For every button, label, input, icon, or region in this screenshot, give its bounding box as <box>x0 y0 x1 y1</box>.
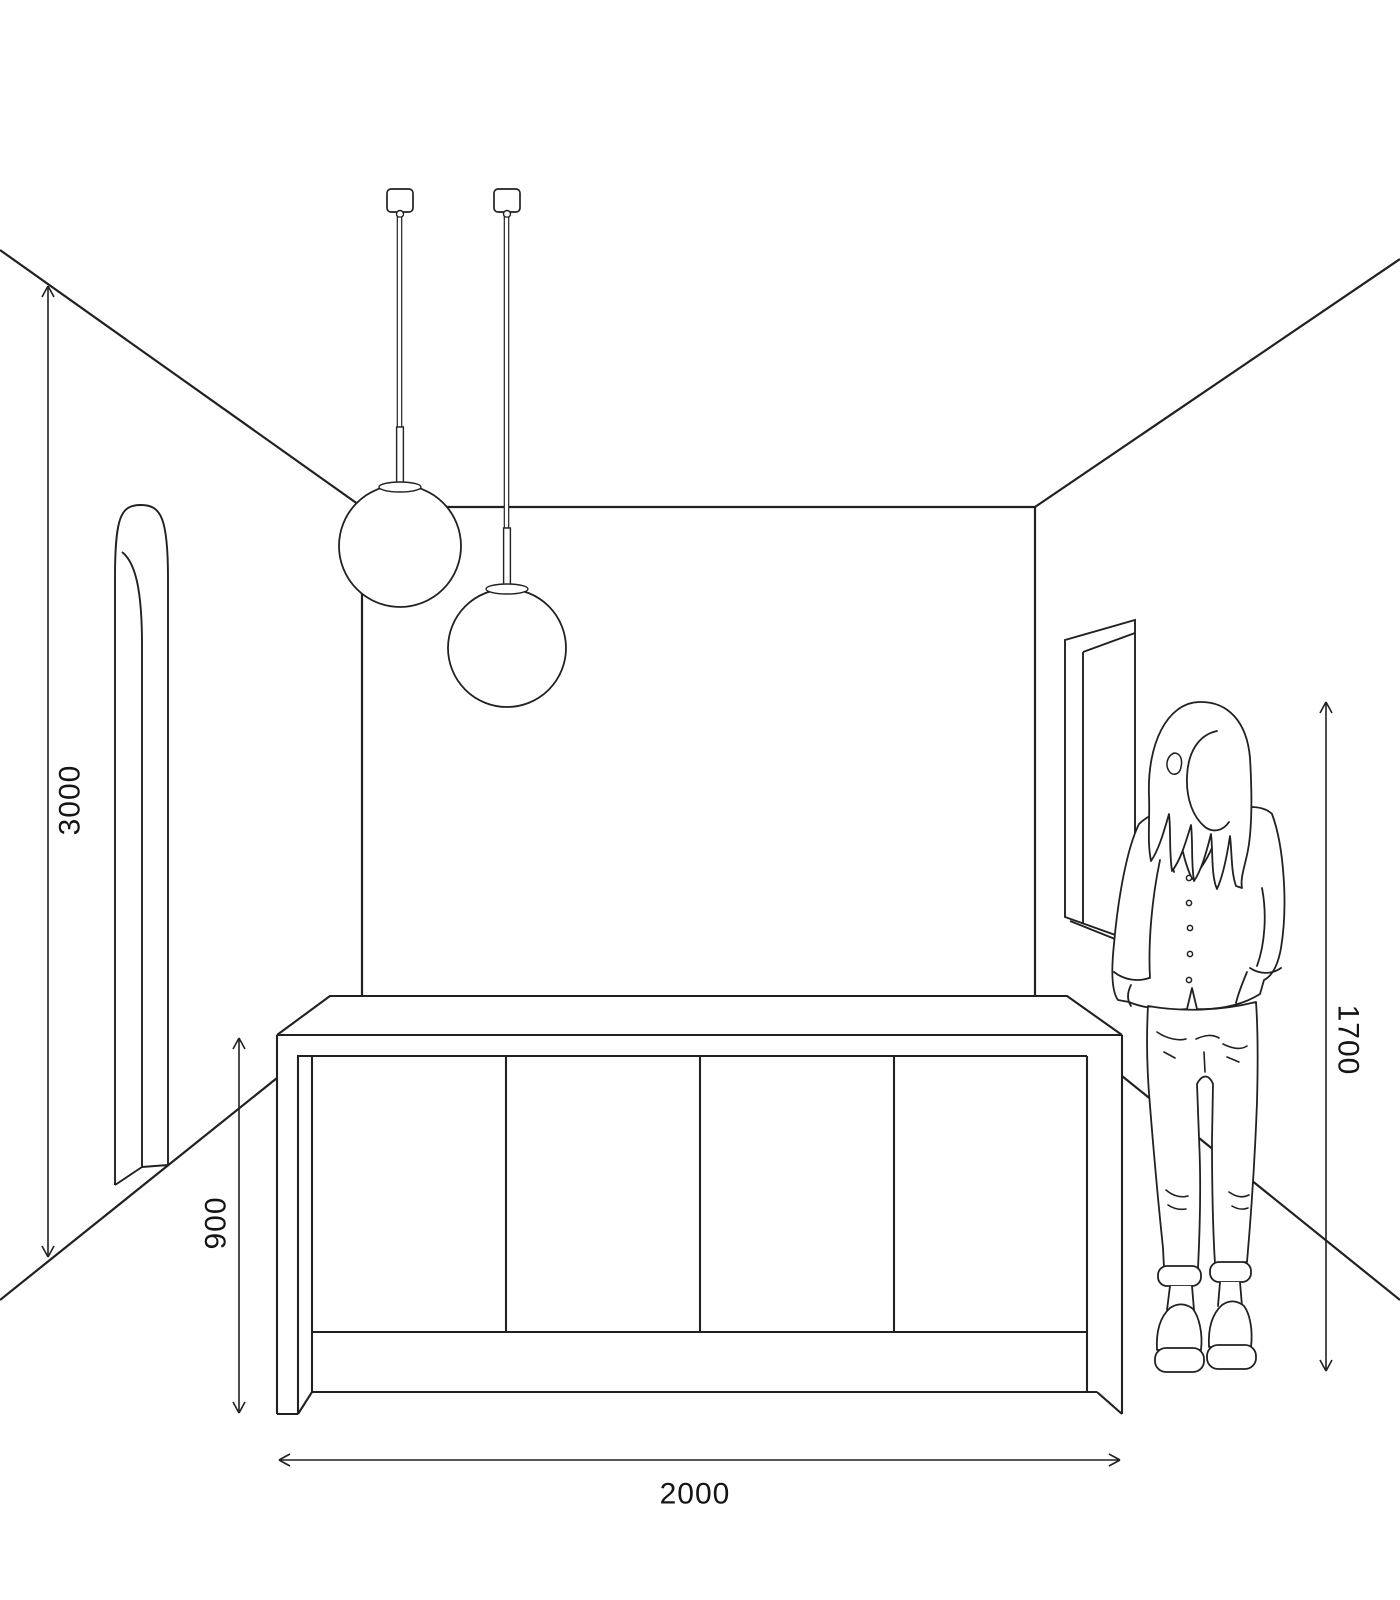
diagram-canvas: 3000 900 1700 2000 <box>0 0 1400 1600</box>
standing-person <box>1112 702 1284 1372</box>
right-wall-ceiling-line <box>1035 259 1400 507</box>
globe-cap-right <box>486 584 528 594</box>
room-dimension-diagram: 3000 900 1700 2000 <box>0 0 1400 1600</box>
button-1 <box>1186 875 1191 880</box>
globe-cap-left <box>379 482 421 492</box>
pendant-stem-left <box>397 427 404 484</box>
dimension-person-height: 1700 <box>1320 702 1365 1371</box>
arch-threshold-line <box>115 1165 168 1185</box>
pendant-light-left <box>339 189 461 607</box>
right-shoe-sole <box>1207 1345 1256 1369</box>
pendant-stem-right <box>504 528 511 586</box>
left-shoe-sole <box>1155 1348 1204 1372</box>
pendant-cord-left <box>397 217 401 427</box>
dimension-wall-height: 3000 <box>42 286 87 1257</box>
pendant-light-right <box>448 189 566 707</box>
ceiling-canopy-left <box>387 189 413 212</box>
glass-globe-right <box>448 589 566 707</box>
pendant-cord-right <box>504 217 508 528</box>
ceiling-canopy-right <box>494 189 520 212</box>
right-shoe-upper <box>1209 1301 1252 1347</box>
button-5 <box>1186 977 1191 982</box>
person-pants <box>1147 1002 1258 1268</box>
button-3 <box>1187 925 1192 930</box>
glass-globe-left <box>339 485 461 607</box>
dimension-label-900: 900 <box>200 1196 233 1249</box>
person-ear <box>1167 753 1182 774</box>
left-wall-floor-line <box>0 1078 277 1300</box>
left-wall-ceiling-line <box>0 250 362 507</box>
right-pant-cuff <box>1210 1262 1251 1282</box>
dimension-label-2000: 2000 <box>660 1478 731 1511</box>
arched-doorway <box>115 505 168 1185</box>
dimension-counter-height: 900 <box>200 1038 246 1413</box>
kitchen-island <box>277 996 1122 1414</box>
dimension-label-3000: 3000 <box>54 765 87 836</box>
arch-inner-reveal-line <box>122 552 142 1167</box>
dimension-label-1700: 1700 <box>1332 1005 1365 1076</box>
left-pant-cuff <box>1158 1266 1201 1286</box>
left-shoe-upper <box>1157 1304 1202 1350</box>
button-4 <box>1187 951 1192 956</box>
button-2 <box>1186 900 1191 905</box>
dimension-counter-width: 2000 <box>279 1454 1120 1511</box>
